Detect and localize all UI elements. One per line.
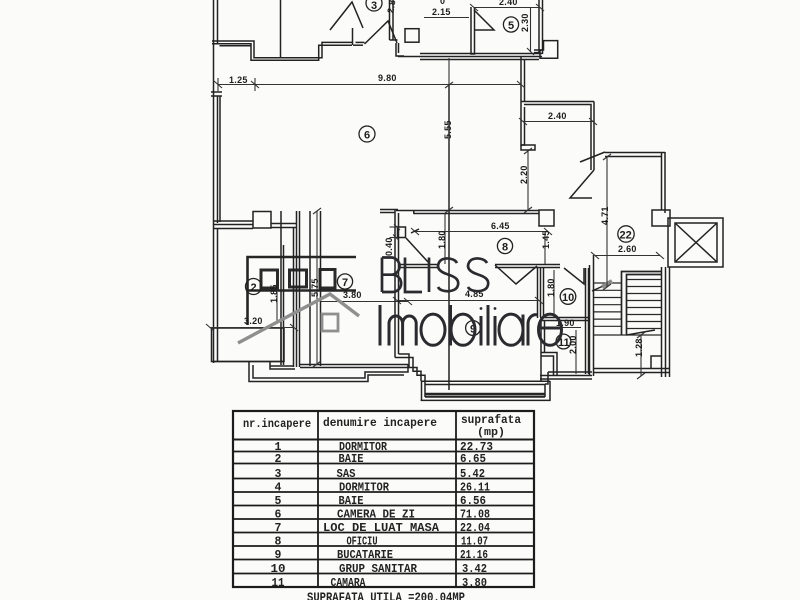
svg-text:5: 5 bbox=[275, 495, 282, 508]
svg-text:LOC DE LUAT MASA: LOC DE LUAT MASA bbox=[323, 522, 439, 535]
svg-text:10: 10 bbox=[271, 563, 286, 576]
svg-text:6.65: 6.65 bbox=[460, 453, 486, 466]
svg-text:GRUP SANITAR: GRUP SANITAR bbox=[339, 563, 417, 576]
svg-text:2: 2 bbox=[251, 282, 257, 294]
svg-text:2.15: 2.15 bbox=[432, 7, 451, 17]
svg-text:1.45: 1.45 bbox=[541, 230, 551, 249]
svg-text:3.80: 3.80 bbox=[343, 290, 362, 300]
svg-text:BAIE: BAIE bbox=[339, 495, 364, 508]
svg-text:3.20: 3.20 bbox=[244, 316, 263, 326]
svg-text:suprafata: suprafata bbox=[461, 413, 521, 427]
svg-text:2.40: 2.40 bbox=[548, 111, 567, 121]
svg-text:11.07: 11.07 bbox=[461, 536, 488, 549]
svg-text:3.42: 3.42 bbox=[462, 563, 487, 576]
svg-text:SUPRAFATA UTILA =200.04MP: SUPRAFATA UTILA =200.04MP bbox=[307, 591, 465, 600]
svg-text:CAMARA: CAMARA bbox=[331, 577, 366, 590]
svg-text:5.42: 5.42 bbox=[460, 468, 485, 481]
svg-text:6.45: 6.45 bbox=[491, 221, 510, 231]
svg-text:21.16: 21.16 bbox=[460, 549, 488, 562]
svg-text:2.8: 2.8 bbox=[385, 0, 397, 14]
svg-text:0.40: 0.40 bbox=[384, 237, 394, 256]
svg-text:6: 6 bbox=[275, 509, 282, 522]
svg-text:nr.incapere: nr.incapere bbox=[243, 417, 311, 431]
svg-text:DORMITOR: DORMITOR bbox=[339, 482, 389, 495]
svg-text:2.30: 2.30 bbox=[520, 13, 530, 32]
svg-text:9: 9 bbox=[275, 549, 282, 562]
svg-text:26.11: 26.11 bbox=[460, 482, 490, 495]
svg-text:1.25: 1.25 bbox=[229, 75, 248, 85]
svg-text:8: 8 bbox=[502, 242, 508, 254]
svg-text:BUCATARIE: BUCATARIE bbox=[337, 549, 393, 562]
svg-text:6: 6 bbox=[364, 130, 370, 142]
svg-text:SAS: SAS bbox=[337, 468, 356, 481]
svg-text:5: 5 bbox=[508, 20, 514, 32]
svg-text:7: 7 bbox=[275, 522, 282, 535]
svg-text:1.80: 1.80 bbox=[546, 278, 556, 297]
svg-text:2.40: 2.40 bbox=[499, 0, 518, 7]
svg-text:3.80: 3.80 bbox=[462, 577, 487, 590]
svg-text:9.80: 9.80 bbox=[378, 73, 397, 83]
svg-text:BAIE: BAIE bbox=[339, 453, 364, 466]
svg-text:4: 4 bbox=[275, 482, 282, 495]
svg-text:1.28: 1.28 bbox=[634, 338, 644, 357]
svg-text:5.55: 5.55 bbox=[443, 120, 453, 139]
svg-text:(mp): (mp) bbox=[477, 427, 505, 439]
svg-text:10: 10 bbox=[562, 292, 574, 304]
svg-text:0: 0 bbox=[440, 0, 445, 6]
svg-text:4.71: 4.71 bbox=[600, 206, 610, 225]
svg-text:1.85: 1.85 bbox=[269, 284, 279, 303]
svg-text:6.56: 6.56 bbox=[460, 495, 486, 508]
svg-text:22: 22 bbox=[620, 230, 632, 242]
svg-text:7: 7 bbox=[342, 277, 348, 289]
svg-text:CAMERA DE ZI: CAMERA DE ZI bbox=[337, 509, 415, 522]
svg-text:2: 2 bbox=[275, 453, 282, 466]
svg-text:71.08: 71.08 bbox=[460, 509, 490, 522]
svg-text:3: 3 bbox=[275, 468, 282, 481]
svg-text:2.20: 2.20 bbox=[519, 165, 529, 184]
svg-text:3: 3 bbox=[371, 0, 377, 12]
svg-text:denumire incapere: denumire incapere bbox=[323, 416, 437, 430]
svg-text:22.04: 22.04 bbox=[460, 522, 490, 535]
svg-text:11: 11 bbox=[272, 577, 285, 590]
svg-text:1.80: 1.80 bbox=[437, 230, 447, 249]
svg-text:5.75: 5.75 bbox=[310, 278, 320, 297]
svg-text:8: 8 bbox=[275, 536, 282, 549]
svg-text:OFICIU: OFICIU bbox=[347, 536, 378, 549]
svg-text:2.60: 2.60 bbox=[618, 244, 637, 254]
